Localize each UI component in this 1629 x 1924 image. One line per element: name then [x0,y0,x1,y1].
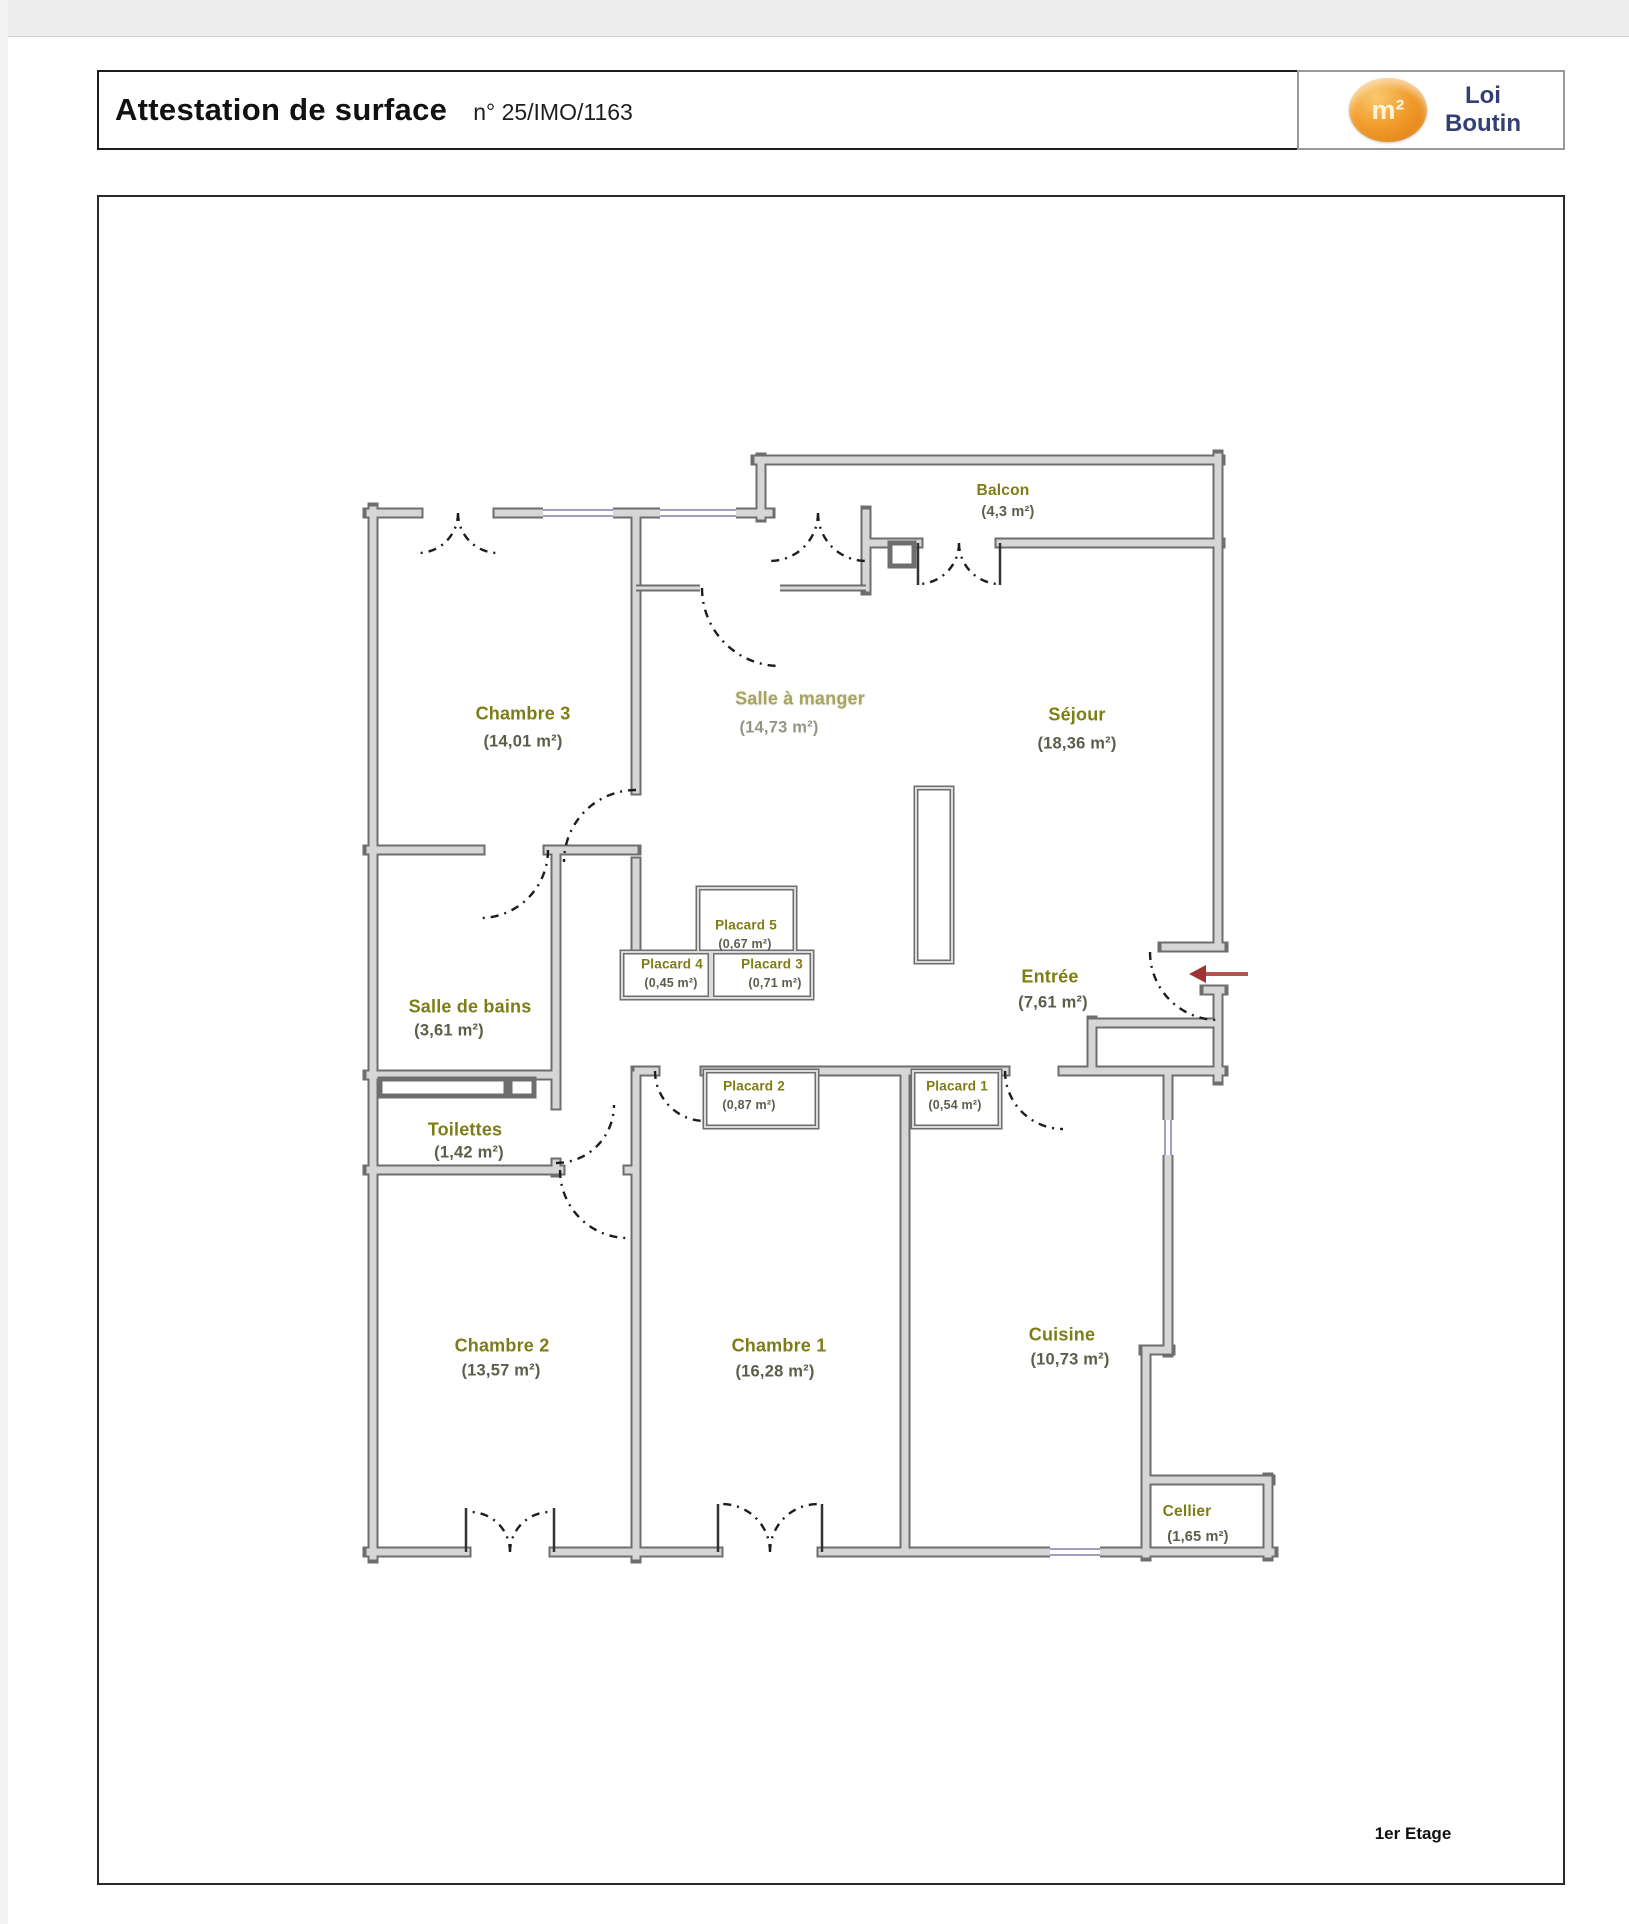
room-label-placard-2: Placard 2 [723,1079,785,1094]
room-area-balcon: (4,3 m²) [981,504,1034,520]
room-label-toilettes: Toilettes [428,1120,502,1141]
room-area-sejour: (18,36 m²) [1037,735,1116,754]
pillar [890,543,914,566]
room-area-salle-a-manger: (14,73 m²) [739,719,818,738]
room-area-placard-3: (0,71 m²) [748,976,801,990]
scan-artifact-left [0,0,8,1924]
page-title: Attestation de surface [115,92,447,128]
room-area-placard-5: (0,67 m²) [718,937,771,951]
room-area-chambre-3: (14,01 m²) [483,733,562,752]
room-label-sejour: Séjour [1048,705,1105,726]
room-area-placard-2: (0,87 m²) [722,1098,775,1112]
room-label-chambre-2: Chambre 2 [455,1336,550,1357]
door-jambs [466,543,1000,1552]
room-area-cuisine: (10,73 m²) [1030,1351,1109,1370]
duct-shaft [916,788,952,962]
door-arcs [418,513,1218,1552]
attestation-page: Attestation de surface n° 25/IMO/1163 m²… [0,0,1629,1924]
room-label-cellier: Cellier [1163,1503,1212,1521]
room-area-chambre-1: (16,28 m²) [735,1363,814,1382]
room-area-chambre-2: (13,57 m²) [461,1362,540,1381]
room-area-placard-4: (0,45 m²) [644,976,697,990]
logo-line1: Loi [1445,82,1521,110]
scan-artifact-strip [0,0,1629,37]
room-area-placard-1: (0,54 m²) [928,1098,981,1112]
room-label-balcon: Balcon [977,482,1030,500]
floor-level-label: 1er Etage [1375,1824,1452,1844]
room-label-chambre-3: Chambre 3 [476,704,571,725]
room-label-placard-3: Placard 3 [741,957,803,972]
document-number: n° 25/IMO/1163 [473,99,633,126]
logo-line2: Boutin [1445,110,1521,138]
room-label-placard-4: Placard 4 [641,957,703,972]
loi-boutin-logo: m² Loi Boutin [1297,70,1565,150]
logo-text: Loi Boutin [1445,82,1521,137]
m2-logo-icon: m² [1349,78,1427,142]
room-area-salle-de-bains: (3,61 m²) [414,1022,484,1041]
room-label-entree: Entrée [1021,967,1078,988]
m2-symbol: m² [1372,95,1405,126]
room-label-placard-1: Placard 1 [926,1079,988,1094]
room-label-salle-a-manger: Salle à manger [735,689,865,710]
room-label-placard-5: Placard 5 [715,918,777,933]
room-area-cellier: (1,65 m²) [1167,1529,1228,1545]
room-area-toilettes: (1,42 m²) [434,1144,504,1163]
header: Attestation de surface n° 25/IMO/1163 m²… [97,70,1565,150]
entrance-arrow-icon [1189,965,1248,983]
room-label-cuisine: Cuisine [1029,1325,1095,1346]
bathroom-vanity [380,1079,506,1096]
room-label-chambre-1: Chambre 1 [732,1336,827,1357]
room-area-entree: (7,61 m²) [1018,994,1088,1013]
room-label-salle-de-bains: Salle de bains [409,997,532,1018]
